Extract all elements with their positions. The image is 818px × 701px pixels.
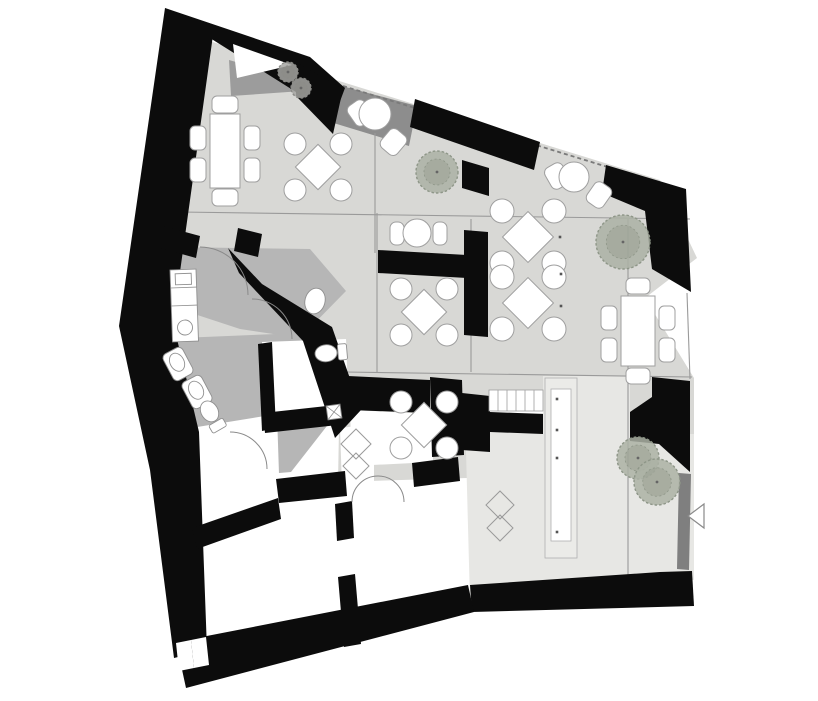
tree bbox=[596, 215, 650, 269]
chair bbox=[436, 324, 458, 346]
trunk bbox=[436, 171, 439, 174]
trunk bbox=[622, 241, 625, 244]
table-top bbox=[559, 162, 589, 192]
chair bbox=[390, 391, 412, 413]
chair bbox=[601, 306, 617, 330]
column-dot bbox=[556, 398, 559, 401]
trunk bbox=[656, 481, 659, 484]
chair bbox=[626, 368, 650, 384]
chair bbox=[244, 158, 260, 182]
column-dot bbox=[559, 236, 562, 239]
chair bbox=[659, 306, 675, 330]
wall-room-divider-upper bbox=[335, 501, 354, 541]
sink-bowl bbox=[177, 320, 193, 336]
column-dot bbox=[560, 273, 563, 276]
bar-counter-top bbox=[551, 389, 571, 541]
trunk bbox=[300, 87, 303, 90]
chair bbox=[436, 437, 458, 459]
window-gap-2 bbox=[191, 637, 209, 668]
chair bbox=[390, 437, 412, 459]
chair bbox=[542, 317, 566, 341]
kitchen-unit bbox=[170, 269, 198, 342]
chair bbox=[601, 338, 617, 362]
wall-l-vertical bbox=[464, 230, 488, 337]
table-top bbox=[621, 296, 655, 366]
bush bbox=[278, 62, 298, 82]
column-dot bbox=[560, 305, 563, 308]
wc-box bbox=[326, 404, 342, 420]
chair bbox=[626, 278, 650, 294]
bush bbox=[291, 78, 311, 98]
chair bbox=[330, 133, 352, 155]
wall-diag-a bbox=[276, 471, 347, 503]
chair bbox=[190, 126, 206, 150]
chair bbox=[542, 265, 566, 289]
chair bbox=[490, 199, 514, 223]
chair bbox=[212, 189, 238, 206]
wall-wc-right bbox=[348, 376, 430, 413]
chair bbox=[433, 222, 447, 245]
trunk bbox=[637, 457, 640, 460]
window-gap-1 bbox=[176, 640, 194, 671]
table-top bbox=[403, 219, 431, 247]
bay-line bbox=[687, 293, 690, 379]
chair bbox=[542, 199, 566, 223]
floor-plan-page bbox=[0, 0, 818, 701]
trunk bbox=[287, 71, 290, 74]
table-top bbox=[359, 98, 391, 130]
sink-basin bbox=[175, 273, 191, 285]
chair bbox=[436, 278, 458, 300]
chair bbox=[436, 391, 458, 413]
chair bbox=[390, 278, 412, 300]
chair bbox=[244, 126, 260, 150]
chair bbox=[659, 338, 675, 362]
wall-stair-core bbox=[462, 393, 490, 452]
column-dot bbox=[556, 429, 559, 432]
chair bbox=[212, 96, 238, 113]
tree bbox=[416, 151, 458, 193]
chair bbox=[284, 133, 306, 155]
toilet-tank bbox=[337, 343, 347, 360]
floor-plan bbox=[0, 0, 818, 701]
chair bbox=[330, 179, 352, 201]
column-dot bbox=[556, 531, 559, 534]
chair bbox=[390, 222, 404, 245]
chair bbox=[284, 179, 306, 201]
round-table bbox=[390, 219, 447, 247]
chair bbox=[390, 324, 412, 346]
stairs bbox=[489, 390, 543, 411]
chair bbox=[190, 158, 206, 182]
chair bbox=[490, 265, 514, 289]
column-dot bbox=[556, 457, 559, 460]
wall-stair-bottom bbox=[490, 412, 543, 434]
table-top bbox=[210, 114, 240, 188]
chair bbox=[490, 317, 514, 341]
tree bbox=[634, 459, 680, 505]
